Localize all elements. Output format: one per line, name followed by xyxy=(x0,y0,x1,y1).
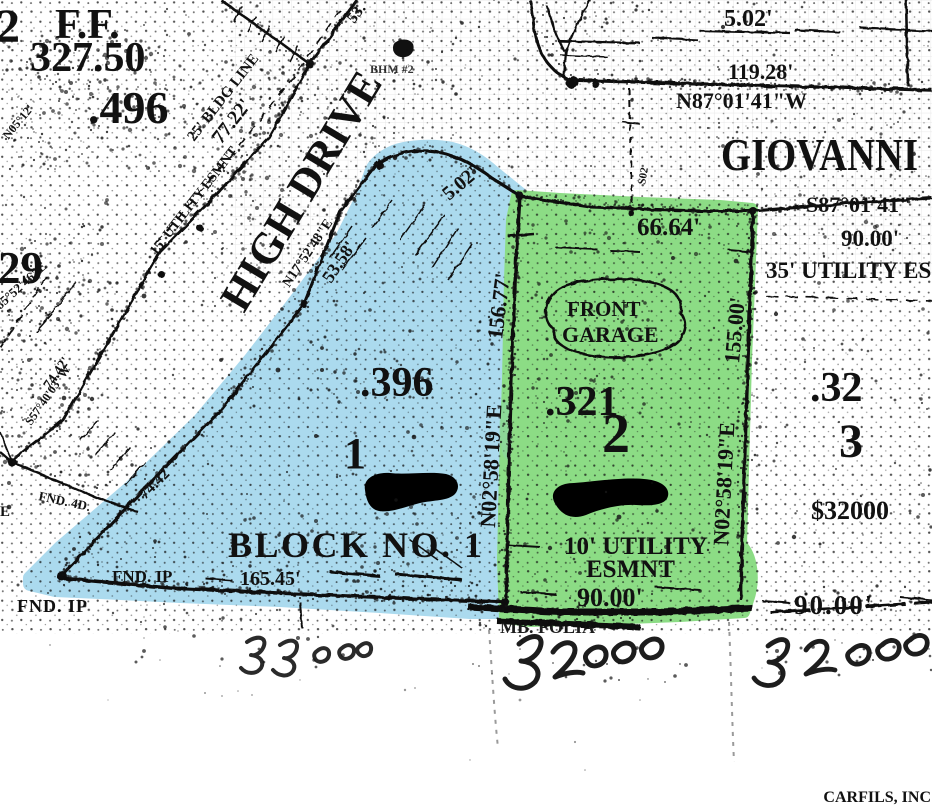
svg-text:BLOCK NO. 1: BLOCK NO. 1 xyxy=(228,525,485,565)
svg-text:$32000: $32000 xyxy=(811,496,889,525)
svg-text:90.00': 90.00' xyxy=(577,583,643,612)
svg-text:.396: .396 xyxy=(360,360,434,406)
svg-text:BHM #2: BHM #2 xyxy=(370,62,414,76)
svg-text:66.64': 66.64' xyxy=(637,214,700,241)
svg-text:165.45': 165.45' xyxy=(240,568,301,590)
svg-text:S87°01'41": S87°01'41" xyxy=(806,192,911,217)
svg-text:GIOVANNI: GIOVANNI xyxy=(721,129,918,180)
svg-text:5.02': 5.02' xyxy=(724,6,773,32)
svg-text:N87°01'41"W: N87°01'41"W xyxy=(676,88,807,113)
svg-text:3: 3 xyxy=(839,415,863,468)
svg-text:35' UTILITY ES: 35' UTILITY ES xyxy=(766,258,931,283)
svg-text:FND. IP: FND. IP xyxy=(17,596,88,616)
svg-text:FRONT: FRONT xyxy=(567,297,641,321)
svg-text:MB. FOLIA: MB. FOLIA xyxy=(500,617,595,637)
svg-text:2: 2 xyxy=(602,403,630,465)
svg-text:119.28': 119.28' xyxy=(728,59,793,84)
svg-text:CARFILS, INC: CARFILS, INC xyxy=(823,789,931,806)
svg-text:.32: .32 xyxy=(810,365,863,411)
svg-text:GARAGE: GARAGE xyxy=(562,322,659,347)
svg-text:1: 1 xyxy=(344,429,366,478)
svg-text:.496: .496 xyxy=(88,82,169,133)
svg-text:ESMNT: ESMNT xyxy=(586,556,675,583)
svg-text:2: 2 xyxy=(0,0,20,53)
